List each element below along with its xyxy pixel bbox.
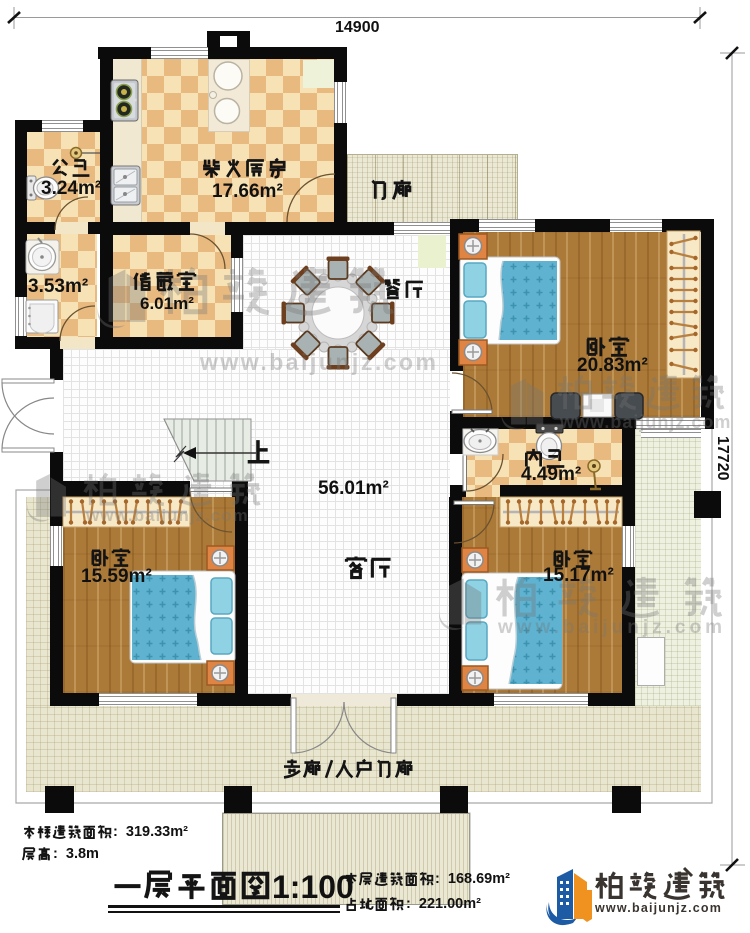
- svg-text:www.baijunjz.com: www.baijunjz.com: [497, 617, 726, 638]
- svg-text:www.baijunjz.com: www.baijunjz.com: [199, 349, 439, 375]
- svg-text:www.baijunjz.com: www.baijunjz.com: [85, 506, 249, 525]
- svg-text:www.baijunjz.com: www.baijunjz.com: [559, 412, 731, 432]
